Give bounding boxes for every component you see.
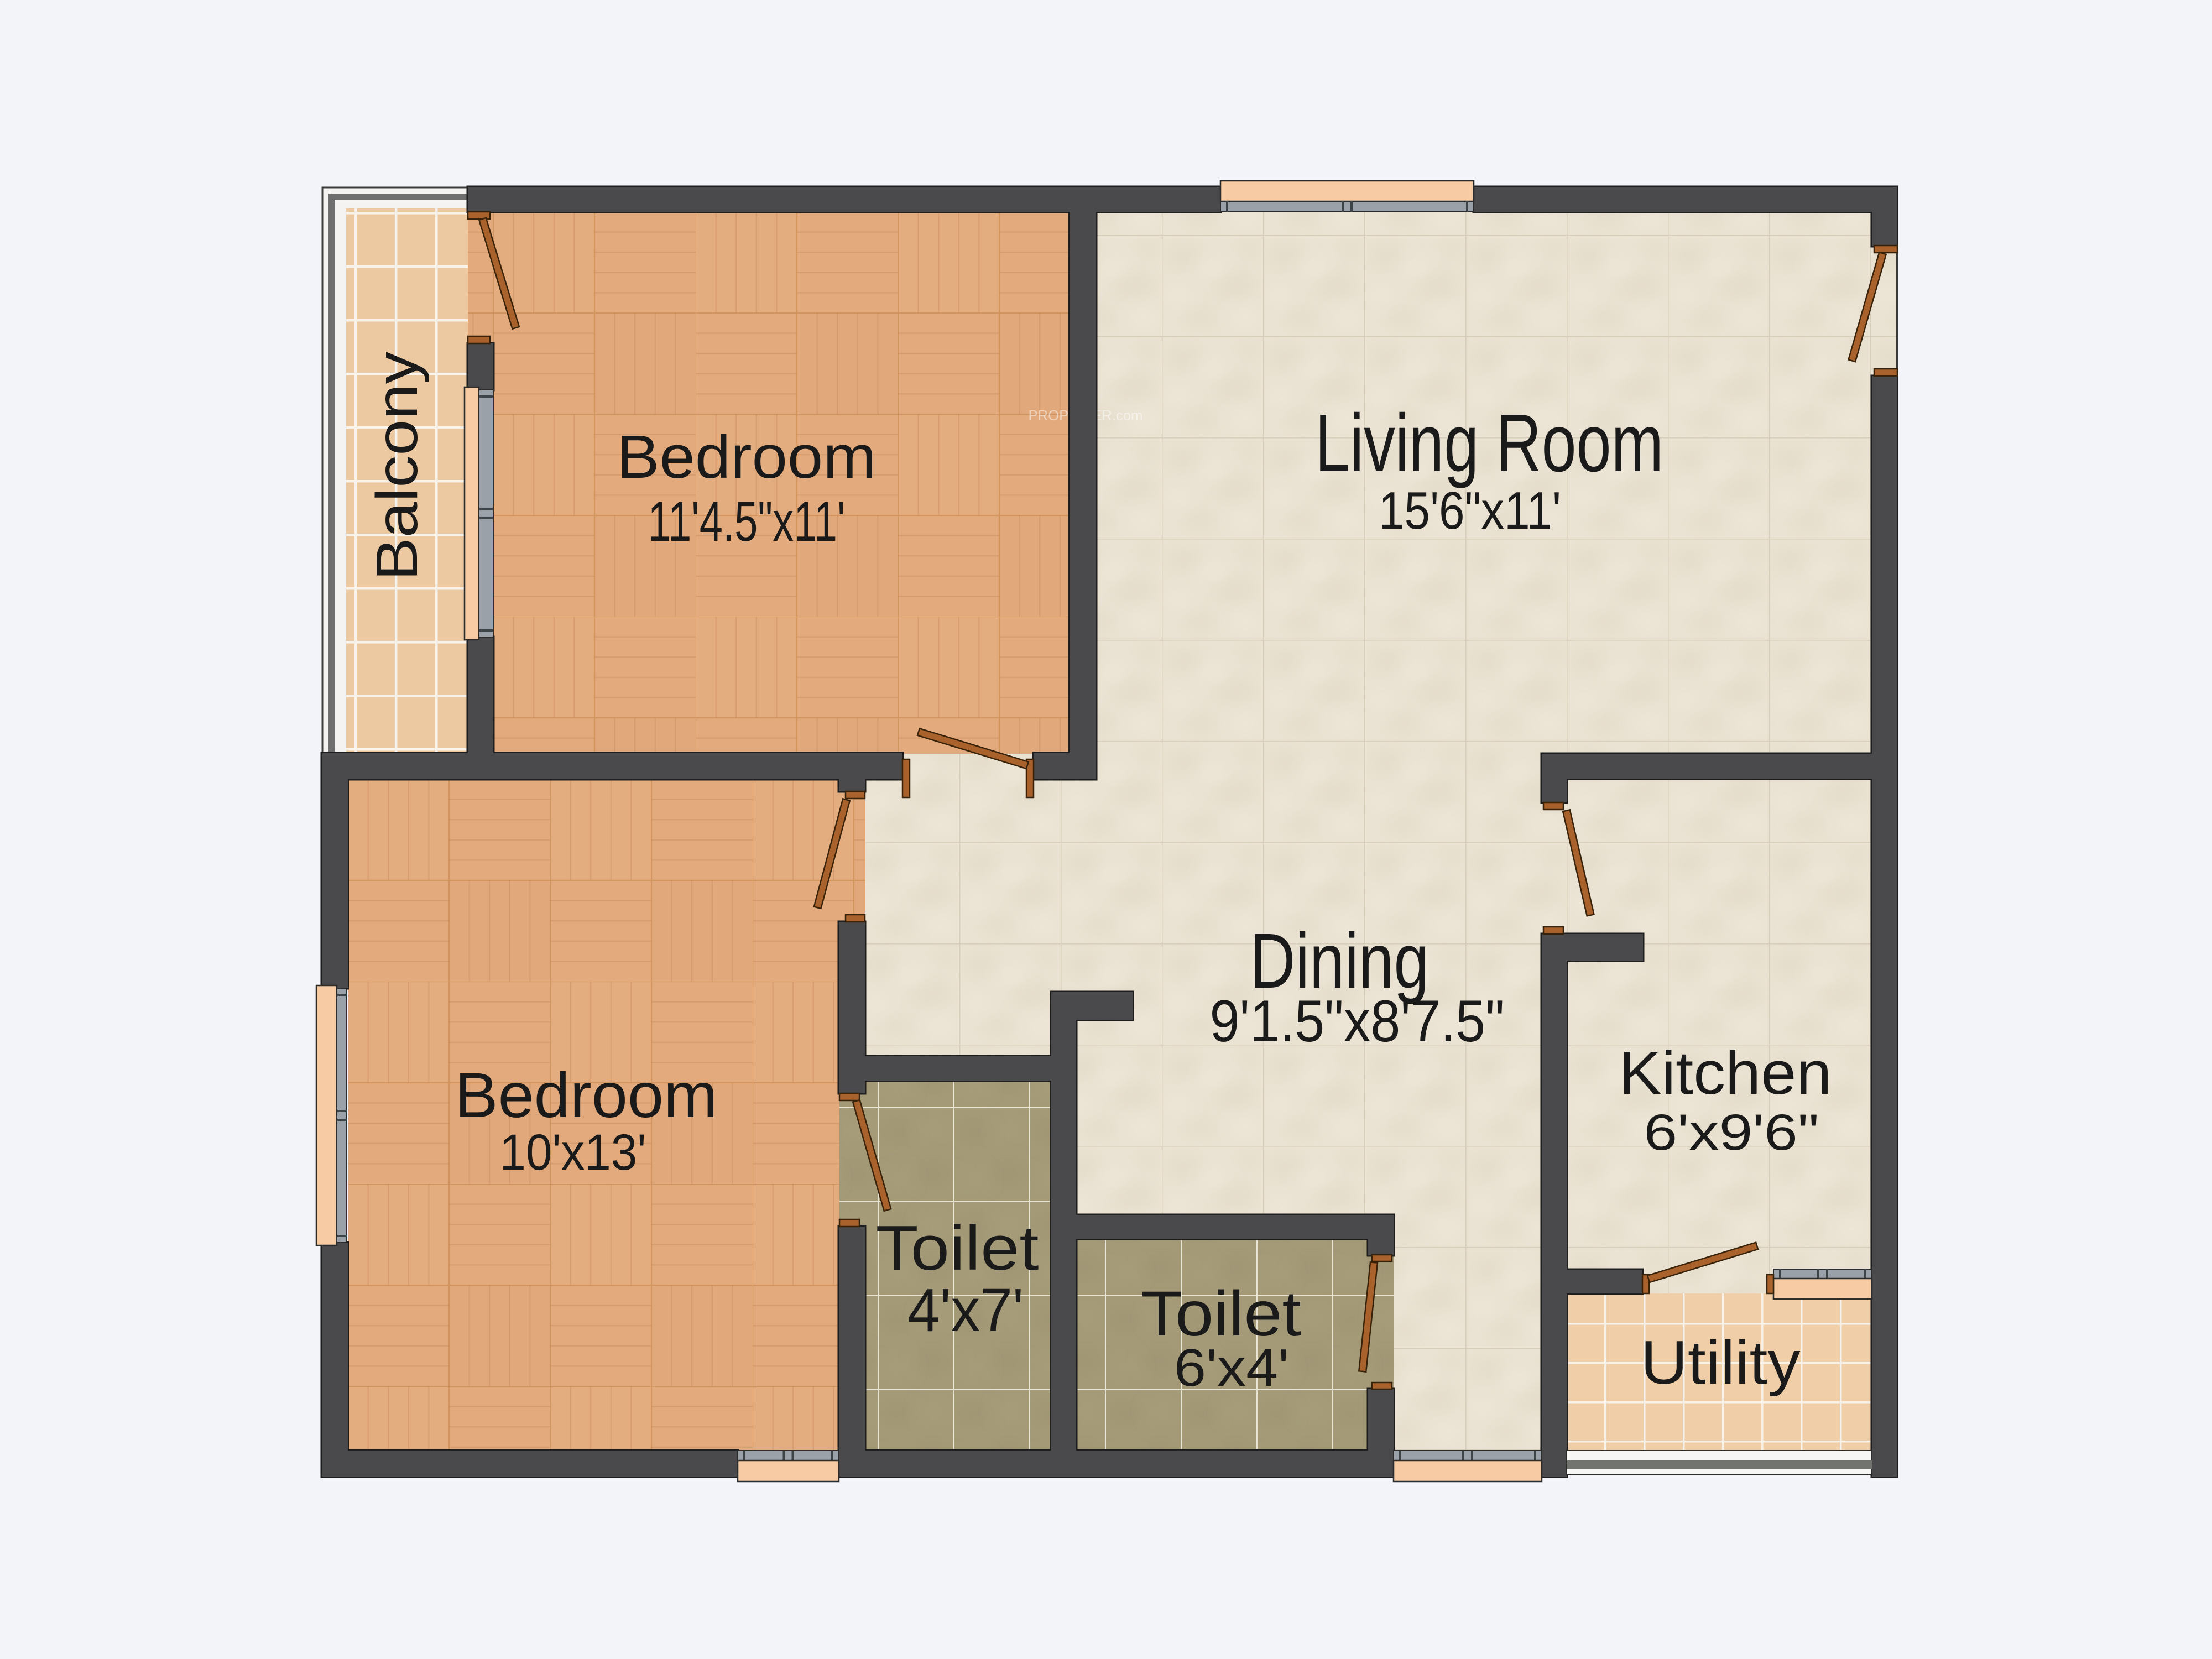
svg-text:15'6"x11': 15'6"x11' bbox=[1379, 481, 1561, 540]
svg-text:Bedroom: Bedroom bbox=[455, 1060, 718, 1131]
svg-text:Utility: Utility bbox=[1641, 1328, 1801, 1397]
svg-text:6'x4': 6'x4' bbox=[1174, 1338, 1289, 1397]
svg-text:10'x13': 10'x13' bbox=[500, 1124, 646, 1181]
svg-text:9'1.5"x8'7.5": 9'1.5"x8'7.5" bbox=[1210, 988, 1505, 1054]
svg-text:Toilet: Toilet bbox=[876, 1213, 1039, 1284]
svg-text:6'x9'6": 6'x9'6" bbox=[1644, 1104, 1819, 1161]
svg-text:Balcony: Balcony bbox=[364, 352, 430, 581]
svg-text:Living Room: Living Room bbox=[1315, 398, 1663, 489]
svg-text:Bedroom: Bedroom bbox=[617, 423, 877, 491]
svg-text:11'4.5"x11': 11'4.5"x11' bbox=[648, 490, 846, 553]
svg-text:4'x7': 4'x7' bbox=[907, 1276, 1024, 1344]
svg-text:Kitchen: Kitchen bbox=[1619, 1039, 1832, 1107]
